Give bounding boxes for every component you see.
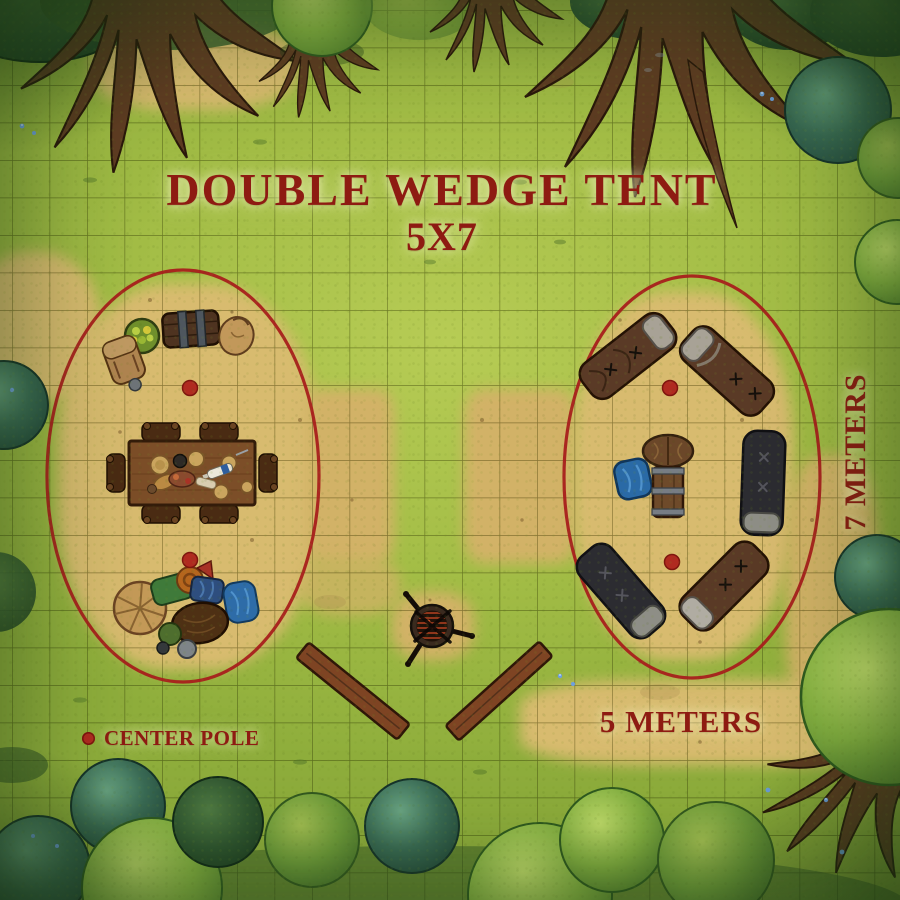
legend-label: CENTER POLE xyxy=(104,726,259,751)
bush-canopy xyxy=(560,788,664,892)
legend: CENTER POLE xyxy=(82,726,259,751)
center-pole-dot xyxy=(183,381,198,396)
center-pole-dot xyxy=(665,555,680,570)
bush-canopy xyxy=(265,793,359,887)
center-pole-legend-dot xyxy=(82,732,95,745)
bush-canopy xyxy=(365,779,459,873)
bedroll-black-right xyxy=(740,430,786,535)
bush-canopy xyxy=(173,777,263,867)
map-title: DOUBLE WEDGE TENT xyxy=(0,163,884,216)
center-pole-dot xyxy=(663,381,678,396)
height-scale-label: 7 METERS xyxy=(839,373,873,530)
map-subtitle: 5X7 xyxy=(0,213,884,260)
battle-map: DOUBLE WEDGE TENT 5X7 7 METERS 5 METERS … xyxy=(0,0,900,900)
wooden-barrel-upright xyxy=(652,467,684,517)
center-pole-dot xyxy=(183,553,198,568)
storage-barrel xyxy=(162,309,220,349)
map-scene xyxy=(0,0,900,900)
supply-sack-right xyxy=(643,435,693,467)
width-scale-label: 5 METERS xyxy=(600,704,762,740)
blue-bundle-right xyxy=(612,457,653,501)
